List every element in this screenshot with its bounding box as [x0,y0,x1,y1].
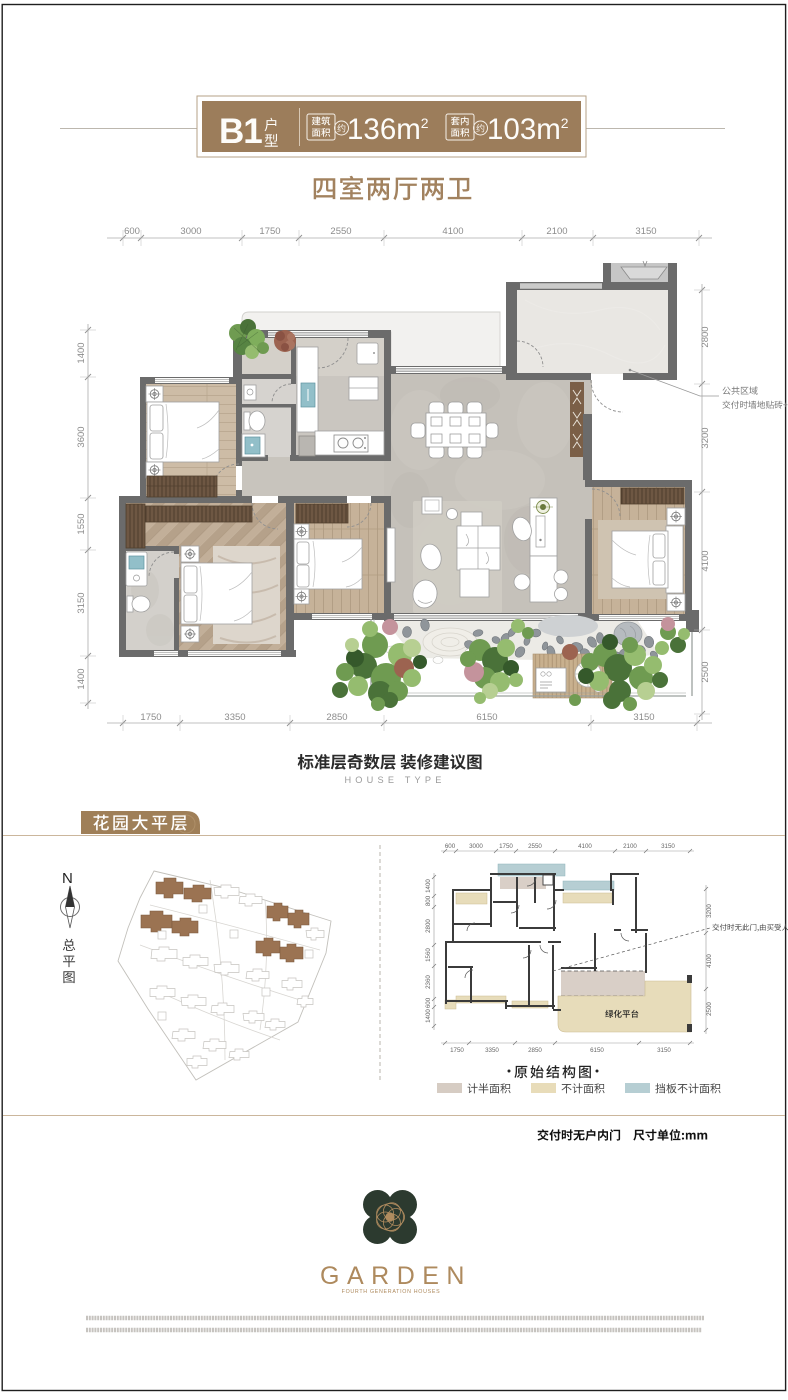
svg-text:4100: 4100 [706,954,713,968]
svg-text:600: 600 [124,226,140,237]
svg-text:1750: 1750 [140,712,161,723]
svg-text:3200: 3200 [706,904,713,918]
svg-text:3600: 3600 [76,426,87,447]
svg-text:1400: 1400 [76,668,87,689]
svg-text:N: N [62,870,73,887]
svg-text:1750: 1750 [450,1047,464,1054]
svg-text:2550: 2550 [528,843,542,850]
svg-text:800: 800 [425,895,432,906]
svg-text:4100: 4100 [700,550,711,571]
svg-text:103m2: 103m2 [487,113,569,146]
svg-text:3150: 3150 [635,226,656,237]
svg-text:2500: 2500 [700,661,711,682]
svg-text:3000: 3000 [180,226,201,237]
svg-text:2100: 2100 [546,226,567,237]
svg-text:3350: 3350 [224,712,245,723]
svg-text:1400: 1400 [425,1009,432,1023]
svg-text:B1: B1 [219,112,262,151]
svg-text:3350: 3350 [485,1047,499,1054]
svg-text:3000: 3000 [469,843,483,850]
svg-text:2850: 2850 [326,712,347,723]
svg-text:1750: 1750 [259,226,280,237]
svg-text:GARDEN: GARDEN [320,1262,472,1290]
svg-text:3150: 3150 [633,712,654,723]
svg-text:2800: 2800 [700,326,711,347]
svg-text:1550: 1550 [76,513,87,534]
svg-text:4100: 4100 [442,226,463,237]
svg-text:4100: 4100 [578,843,592,850]
svg-text:600: 600 [445,843,456,850]
svg-text:6150: 6150 [590,1047,604,1054]
svg-text:2360: 2360 [425,975,432,989]
svg-text:2100: 2100 [623,843,637,850]
svg-text:2550: 2550 [330,226,351,237]
svg-text:6150: 6150 [476,712,497,723]
svg-text:3150: 3150 [76,592,87,613]
svg-text:1400: 1400 [425,879,432,893]
svg-text:3200: 3200 [700,427,711,448]
svg-text:FOURTH GENERATION HOUSES: FOURTH GENERATION HOUSES [342,1289,441,1295]
svg-text:2850: 2850 [528,1047,542,1054]
svg-text:HOUSE TYPE: HOUSE TYPE [344,775,445,785]
svg-text:1400: 1400 [76,342,87,363]
svg-text:1750: 1750 [499,843,513,850]
svg-text:600: 600 [425,997,432,1008]
svg-text:136m2: 136m2 [347,113,429,146]
svg-text:3150: 3150 [657,1047,671,1054]
svg-text:3150: 3150 [661,843,675,850]
svg-text:2500: 2500 [706,1002,713,1016]
svg-text:1560: 1560 [425,948,432,962]
svg-text:2800: 2800 [425,919,432,933]
